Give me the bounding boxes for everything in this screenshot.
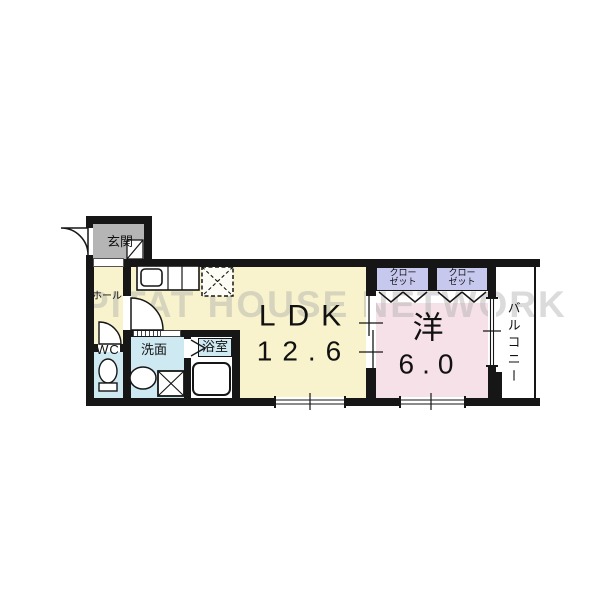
swing-door-icon: [99, 322, 121, 344]
sliding-window-icon: [483, 298, 501, 366]
genkan-label: 玄関: [107, 235, 133, 249]
ldk-label: LDK: [259, 300, 353, 332]
washroom-label: 洗面: [141, 343, 167, 357]
sliding-door-icon: [359, 296, 383, 368]
western-room-size-label: 6.0: [399, 349, 462, 378]
washbasin-icon: [130, 367, 156, 389]
swing-door-icon: [61, 228, 88, 255]
floor-plan: PITAT HOUSE NETWORK: [0, 0, 600, 600]
closet-right-label-line2: ゼット: [448, 277, 475, 287]
ldk-size-label: 12.6: [257, 336, 352, 365]
washing-machine-icon: [158, 371, 184, 396]
bifold-door-icon: [379, 292, 486, 302]
toilet-icon: [99, 359, 117, 391]
bathroom-label: 浴室: [202, 340, 228, 354]
balcony-label: バルコニー: [506, 301, 520, 386]
hall-label: ホール: [92, 292, 122, 303]
bathtub-icon: [193, 363, 230, 395]
western-room-label: 洋: [413, 313, 444, 346]
refrigerator-space-icon: [202, 267, 233, 296]
wc-label: WC: [96, 343, 120, 357]
kitchen-counter-icon: [137, 266, 199, 290]
window-icon: [400, 393, 465, 410]
window-icon: [275, 393, 345, 410]
sink-icon: [141, 269, 162, 286]
swing-door-icon: [131, 298, 163, 330]
closet-left-label-line2: ゼット: [389, 277, 416, 287]
